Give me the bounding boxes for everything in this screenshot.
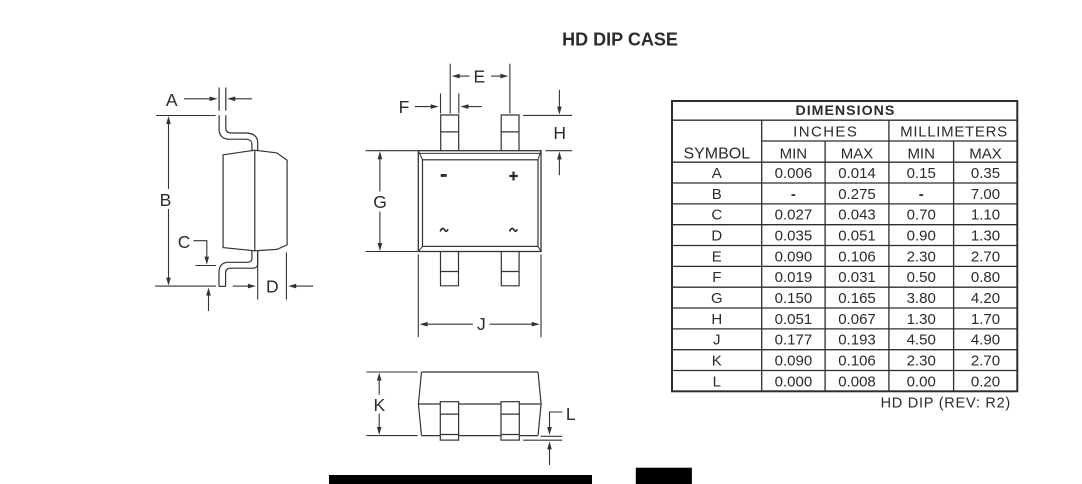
svg-text:J: J (713, 332, 721, 349)
svg-text:B: B (160, 190, 172, 210)
svg-text:0.043: 0.043 (838, 207, 876, 224)
svg-text:0.051: 0.051 (838, 228, 876, 245)
svg-text:0.090: 0.090 (775, 248, 813, 265)
svg-text:J: J (477, 314, 486, 334)
svg-text:0.165: 0.165 (838, 290, 876, 307)
svg-text:0.193: 0.193 (838, 332, 876, 349)
svg-text:D: D (711, 228, 722, 245)
svg-text:-: - (791, 186, 796, 203)
svg-text:4.50: 4.50 (907, 332, 936, 349)
svg-text:H: H (711, 311, 722, 328)
svg-text:0.000: 0.000 (775, 373, 813, 390)
svg-text:B: B (712, 186, 722, 203)
svg-text:SYMBOL: SYMBOL (683, 146, 750, 163)
svg-text:F: F (712, 269, 721, 286)
svg-text:0.027: 0.027 (775, 207, 813, 224)
svg-text:0.80: 0.80 (971, 269, 1000, 286)
svg-text:2.30: 2.30 (907, 353, 936, 370)
svg-text:F: F (399, 97, 410, 117)
svg-text:G: G (711, 290, 723, 307)
svg-text:E: E (473, 67, 485, 87)
svg-text:0.035: 0.035 (775, 228, 813, 245)
svg-text:0.00: 0.00 (907, 373, 936, 390)
svg-text:0.90: 0.90 (907, 228, 936, 245)
svg-text:MILLIMETERS: MILLIMETERS (900, 123, 1008, 140)
svg-text:1.10: 1.10 (971, 207, 1000, 224)
svg-text:0.15: 0.15 (907, 165, 936, 182)
svg-text:0.275: 0.275 (838, 186, 876, 203)
svg-text:3.80: 3.80 (907, 290, 936, 307)
svg-text:INCHES: INCHES (793, 123, 858, 140)
svg-text:0.031: 0.031 (838, 269, 876, 286)
svg-text:MIN: MIN (780, 145, 808, 162)
svg-text:K: K (712, 353, 722, 370)
svg-text:0.35: 0.35 (971, 165, 1000, 182)
svg-text:2.30: 2.30 (907, 248, 936, 265)
svg-text:L: L (566, 404, 576, 424)
svg-text:MAX: MAX (841, 145, 874, 162)
svg-text:C: C (178, 232, 191, 252)
svg-text:1.30: 1.30 (971, 228, 1000, 245)
svg-text:2.70: 2.70 (971, 248, 1000, 265)
svg-text:DIMENSIONS: DIMENSIONS (795, 103, 895, 119)
svg-text:C: C (711, 207, 722, 224)
svg-text:1.70: 1.70 (971, 311, 1000, 328)
svg-text:7.00: 7.00 (971, 186, 1000, 203)
svg-text:0.006: 0.006 (775, 165, 813, 182)
svg-text:4.20: 4.20 (971, 290, 1000, 307)
svg-text:MAX: MAX (969, 145, 1002, 162)
svg-text:HD DIP (REV: R2): HD DIP (REV: R2) (881, 395, 1011, 411)
svg-text:K: K (374, 395, 386, 415)
svg-text:G: G (373, 192, 387, 212)
svg-text:0.70: 0.70 (907, 207, 936, 224)
svg-text:1.30: 1.30 (907, 311, 936, 328)
svg-text:E: E (712, 248, 722, 265)
svg-text:H: H (553, 123, 566, 143)
svg-text:0.20: 0.20 (971, 373, 1000, 390)
svg-text:A: A (712, 165, 722, 182)
svg-text:0.008: 0.008 (838, 373, 876, 390)
svg-text:0.090: 0.090 (775, 353, 813, 370)
svg-text:0.150: 0.150 (775, 290, 813, 307)
svg-text:0.067: 0.067 (838, 311, 876, 328)
svg-text:0.014: 0.014 (838, 165, 876, 182)
svg-text:0.019: 0.019 (775, 269, 813, 286)
svg-text:4.90: 4.90 (971, 332, 1000, 349)
svg-text:0.106: 0.106 (838, 353, 876, 370)
svg-text:0.051: 0.051 (775, 311, 813, 328)
svg-text:-: - (919, 186, 924, 203)
svg-text:A: A (166, 90, 178, 110)
svg-text:0.106: 0.106 (838, 248, 876, 265)
svg-text:HD DIP CASE: HD DIP CASE (562, 30, 678, 50)
svg-text:MIN: MIN (907, 145, 935, 162)
svg-text:D: D (266, 276, 279, 296)
svg-text:2.70: 2.70 (971, 353, 1000, 370)
svg-text:0.177: 0.177 (775, 332, 813, 349)
svg-text:0.50: 0.50 (907, 269, 936, 286)
svg-text:L: L (713, 373, 721, 390)
